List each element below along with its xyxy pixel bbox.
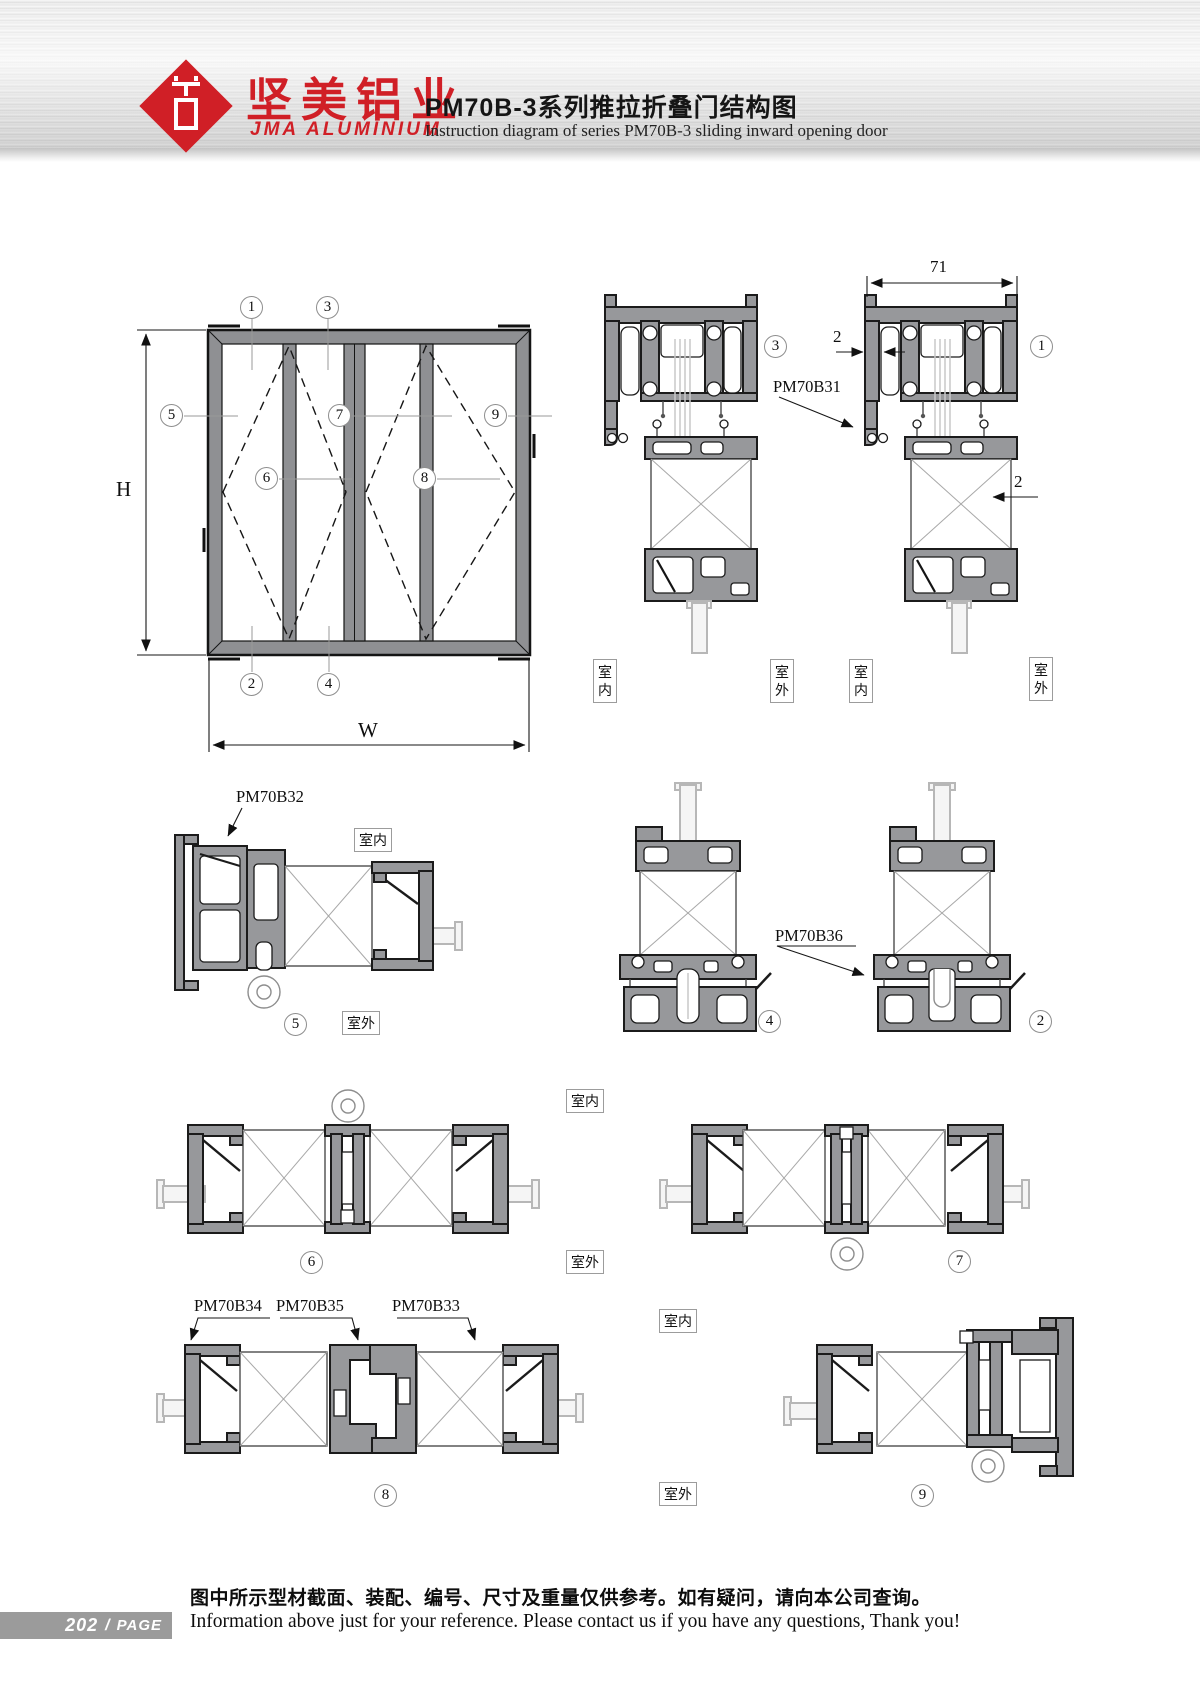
callout-8-elevation: 8 xyxy=(413,467,436,490)
section-2-drawing xyxy=(874,783,1025,1031)
indoor-label-s1: 室内 xyxy=(849,659,873,703)
section-4-drawing xyxy=(620,783,771,1031)
page-separator: / xyxy=(105,1617,109,1635)
section-8-drawing xyxy=(157,1318,583,1453)
indoor-label-s3: 室内 xyxy=(593,659,617,703)
section-9-drawing xyxy=(784,1318,1073,1482)
profile-label-pm70b36: PM70B36 xyxy=(775,926,843,946)
dim-label-2-right: 2 xyxy=(1014,472,1023,492)
section-6-drawing xyxy=(157,1090,539,1233)
outdoor-label-s67: 室外 xyxy=(566,1250,604,1274)
callout-7-elevation: 7 xyxy=(328,404,351,427)
profile-label-pm70b35: PM70B35 xyxy=(276,1296,344,1316)
callout-5-section: 5 xyxy=(284,1013,307,1036)
callout-9-section: 9 xyxy=(911,1484,934,1507)
indoor-label-s89: 室内 xyxy=(659,1309,697,1333)
callout-5-elevation: 5 xyxy=(160,404,183,427)
callout-9-elevation: 9 xyxy=(484,404,507,427)
section-5-drawing xyxy=(175,808,462,1008)
callout-4-elevation: 4 xyxy=(317,673,340,696)
footer-note-cn: 图中所示型材截面、装配、编号、尺寸及重量仅供参考。如有疑问，请向本公司查询。 xyxy=(190,1583,931,1610)
diagram-artwork xyxy=(0,0,1200,1697)
callout-7-section: 7 xyxy=(948,1250,971,1273)
callout-1-section: 1 xyxy=(1030,335,1053,358)
callout-3-elevation: 3 xyxy=(316,296,339,319)
callout-6-elevation: 6 xyxy=(255,467,278,490)
indoor-label-s5: 室内 xyxy=(354,828,392,852)
dim-label-2-left: 2 xyxy=(833,327,842,347)
footer-note-en: Information above just for your referenc… xyxy=(190,1611,960,1633)
profile-label-pm70b32: PM70B32 xyxy=(236,787,304,807)
dim-label-71: 71 xyxy=(930,257,947,277)
outdoor-label-s5: 室外 xyxy=(342,1011,380,1035)
dim-label-H: H xyxy=(116,477,131,502)
page-label: PAGE xyxy=(117,1617,162,1634)
profile-label-pm70b31: PM70B31 xyxy=(773,377,841,397)
outdoor-label-s89: 室外 xyxy=(659,1482,697,1506)
section-3-drawing xyxy=(605,295,757,653)
catalog-page: { "header": { "logo_cn": "坚美铝业", "logo_e… xyxy=(0,0,1200,1697)
callout-1-elevation: 1 xyxy=(240,296,263,319)
callout-8-section: 8 xyxy=(374,1484,397,1507)
profile-label-pm70b33: PM70B33 xyxy=(392,1296,460,1316)
section-7-drawing xyxy=(660,1125,1029,1270)
page-number: 202 xyxy=(65,1615,98,1636)
callout-3-section: 3 xyxy=(764,335,787,358)
page-number-badge: 202 / PAGE xyxy=(0,1612,172,1639)
callout-2-elevation: 2 xyxy=(240,673,263,696)
indoor-label-s67: 室内 xyxy=(566,1089,604,1113)
section-1-drawing xyxy=(779,276,1038,653)
callout-6-section: 6 xyxy=(300,1251,323,1274)
elevation-view xyxy=(137,319,552,752)
profile-label-pm70b34: PM70B34 xyxy=(194,1296,262,1316)
callout-4-section: 4 xyxy=(758,1010,781,1033)
callout-2-section: 2 xyxy=(1029,1010,1052,1033)
outdoor-label-s1: 室外 xyxy=(1029,657,1053,701)
outdoor-label-s3: 室外 xyxy=(770,659,794,703)
dim-label-W: W xyxy=(358,718,378,743)
